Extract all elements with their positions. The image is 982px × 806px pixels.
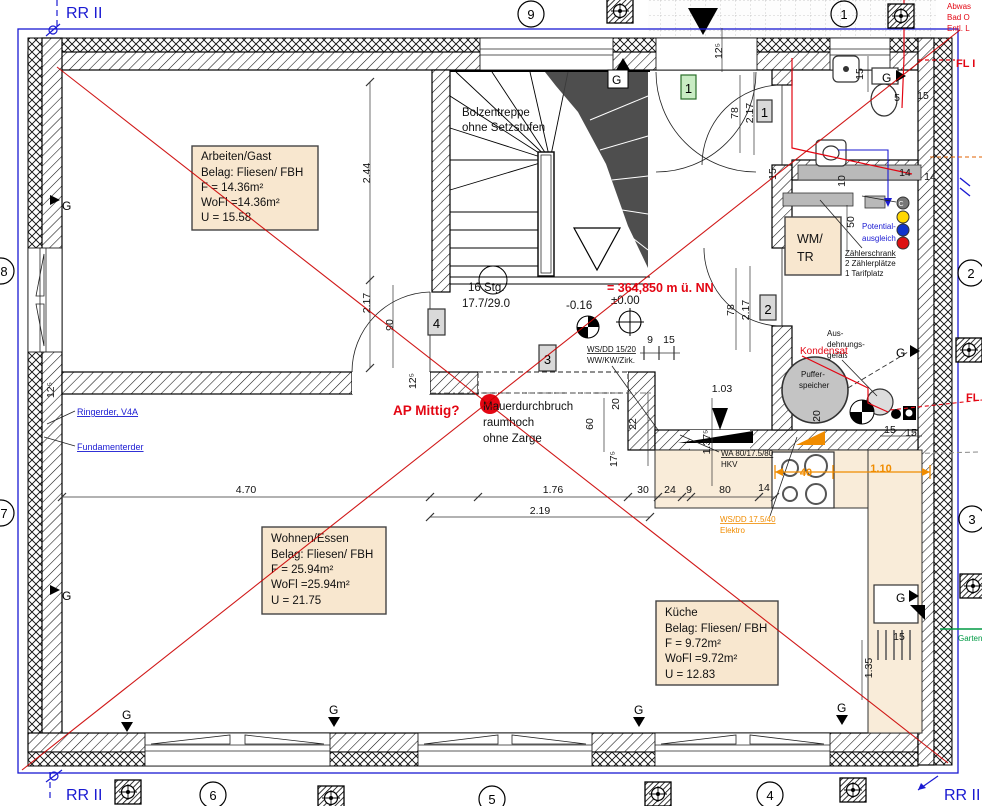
durchbruch-2: raumhoch: [483, 417, 534, 429]
axis-number: 4: [766, 788, 773, 803]
nn-level: = 364,850 m ü. NN: [607, 281, 714, 295]
dim-text: 15: [905, 427, 917, 439]
dim-text: 90: [384, 319, 396, 331]
ws-dd-15: WS/DD 15/20: [587, 345, 636, 354]
g-marker-label: G: [62, 199, 71, 213]
room-name: Arbeiten/Gast: [201, 151, 272, 163]
dim-text: 12⁵: [407, 373, 419, 389]
dim-text: 2.17: [744, 103, 756, 124]
ww-kw-zirk: WW/KW/Zirk.: [587, 356, 635, 365]
tr-label: TR: [797, 250, 814, 264]
dim-text: 1.03: [712, 383, 733, 395]
kondensat-label: Kondensat: [800, 346, 848, 357]
room-wofl: WoFl =14.36m²: [201, 197, 280, 209]
axis-number: 1: [840, 7, 847, 22]
g-marker-label: G: [122, 708, 131, 722]
dim-text: 20: [610, 398, 622, 410]
stair-type: Bolzentreppe: [462, 107, 530, 119]
g-marker-label: G: [896, 591, 905, 605]
axis-number: 3: [968, 512, 975, 527]
dim-text: 2.17: [361, 293, 373, 314]
fundamenterder-label: Fundamenterder: [77, 442, 144, 452]
axis-number: 9: [527, 7, 534, 22]
dim-text: 9: [647, 334, 653, 346]
puffer-2: speicher: [799, 381, 830, 390]
fl-1-label: FL I: [956, 58, 975, 70]
door-number: 1: [761, 105, 768, 120]
door-number: 2: [764, 302, 771, 317]
g-marker-label: G: [612, 73, 621, 87]
bottom-window-2: [418, 733, 592, 766]
hkv: HKV: [721, 460, 738, 469]
dim-text: 4.70: [236, 484, 257, 496]
door-number: 4: [433, 316, 440, 331]
garten-label: Garten: [958, 634, 982, 643]
room-u: U = 15.58: [201, 212, 251, 224]
dim-text: 9: [686, 484, 692, 496]
zaehlerschrank: Zählerschrank: [845, 249, 897, 258]
room-wofl: WoFl =25.94m²: [271, 579, 350, 591]
bottom-window-3: [655, 733, 830, 766]
stair-ratio: 17.7/29.0: [462, 298, 510, 310]
stair-steps: 16 Stg.: [468, 282, 504, 294]
dim-text: 14: [924, 171, 936, 183]
room-label-wohnen: Wohnen/Essen Belag: Fliesen/ FBH F = 25.…: [262, 527, 386, 614]
axis-number: 5: [488, 792, 495, 806]
dim-text-orange: 1.10: [870, 463, 891, 475]
dim-text: 15: [884, 424, 896, 436]
dim-text: 2.17: [740, 300, 752, 321]
dim-text: 10: [836, 175, 848, 187]
level-minus: -0.16: [566, 300, 592, 312]
dim-text: 22: [627, 418, 639, 430]
dim-text: 15: [917, 90, 929, 102]
ausdehnung-1: Aus-: [827, 329, 844, 338]
room-label-kueche: Küche Belag: Fliesen/ FBH F = 9.72m² WoF…: [656, 601, 778, 685]
room-wofl: WoFl =9.72m²: [665, 653, 737, 665]
dim-text: 1.37⁵: [701, 430, 713, 455]
potential-2: ausgleich: [862, 234, 896, 243]
dim-text: 14: [758, 482, 770, 494]
g-marker-label: G: [882, 71, 891, 85]
clipped-note-1: Abwas: [947, 2, 971, 11]
dim-text: 50: [845, 216, 857, 228]
room-name: Küche: [665, 607, 698, 619]
g-marker-label: G: [837, 701, 846, 715]
g-marker-label: G: [896, 346, 905, 360]
elektro: Elektro: [720, 526, 745, 535]
axis-number: 8: [0, 264, 7, 279]
door-number: 3: [544, 352, 551, 367]
dim-text-orange: 40: [800, 467, 812, 479]
durchbruch-1: Mauerdurchbruch: [483, 401, 573, 413]
wm-label: WM/: [797, 232, 823, 246]
dim-text: 12⁵: [713, 43, 725, 59]
room-u: U = 12.83: [665, 669, 715, 681]
dim-text: 78: [725, 304, 737, 316]
dim-text: 20: [811, 410, 823, 422]
fl-2-label: FL: [966, 392, 980, 404]
rr-label: RR II: [66, 5, 102, 22]
dim-text: 30: [637, 484, 649, 496]
dim-text: 2.44: [361, 163, 373, 184]
axis-number: 7: [0, 506, 7, 521]
floor-plan-canvas: Arbeiten/Gast Belag: Fliesen/ FBH F = 14…: [0, 0, 982, 806]
wa-80: WA 80/17.5/80: [721, 449, 774, 458]
dim-text: 17⁵: [608, 451, 620, 467]
ws-dd-17: WS/DD 17.5/40: [720, 515, 776, 524]
ap-mittig-note: AP Mittig?: [393, 403, 460, 418]
g-marker-label: G: [62, 589, 71, 603]
dim-text: 5: [894, 92, 900, 104]
puffer-1: Puffer-: [801, 370, 825, 379]
level-zero: ±0.00: [611, 295, 640, 307]
g-marker-label: G: [329, 703, 338, 717]
axis-number: 6: [209, 788, 216, 803]
dim-text: 12⁵: [45, 382, 57, 398]
window-number-green: 1: [685, 81, 692, 96]
dim-text: 1.76: [543, 484, 564, 496]
dim-text: 15: [854, 68, 866, 80]
dim-text: 15: [893, 631, 905, 643]
room-label-arbeiten: Arbeiten/Gast Belag: Fliesen/ FBH F = 14…: [192, 146, 318, 230]
ringerder-label: Ringerder, V4A: [77, 407, 138, 417]
dim-text: 15: [663, 334, 675, 346]
rr-label: RR II: [944, 787, 980, 804]
dim-text: 14: [899, 167, 911, 179]
wm-tr-box: [785, 217, 841, 275]
potential-1: Potential-: [862, 222, 896, 231]
clipped-note-2: Bad O: [947, 13, 970, 22]
zaehlerplaetze: 2 Zählerplätze: [845, 259, 896, 268]
dim-text: 60: [584, 418, 596, 430]
dim-text: 78: [729, 107, 741, 119]
dim-text: 80: [719, 484, 731, 496]
terminal-c: C: [898, 201, 903, 208]
rr-label: RR II: [66, 787, 102, 804]
g-marker-label: G: [634, 703, 643, 717]
room-f: F = 9.72m²: [665, 638, 721, 650]
room-f: F = 14.36m²: [201, 182, 263, 194]
stair-type-2: ohne Setzstufen: [462, 122, 545, 134]
room-belag: Belag: Fliesen/ FBH: [201, 167, 303, 179]
room-belag: Belag: Fliesen/ FBH: [665, 623, 767, 635]
dim-text: 24: [664, 484, 676, 496]
dim-text: 1.35: [863, 658, 875, 679]
room-belag: Belag: Fliesen/ FBH: [271, 549, 373, 561]
dim-text: 2.19: [530, 505, 551, 517]
axis-number: 2: [967, 266, 974, 281]
room-u: U = 21.75: [271, 595, 321, 607]
tarifplatz: 1 Tarifplatz: [845, 269, 884, 278]
bottom-window-1: [145, 733, 330, 766]
